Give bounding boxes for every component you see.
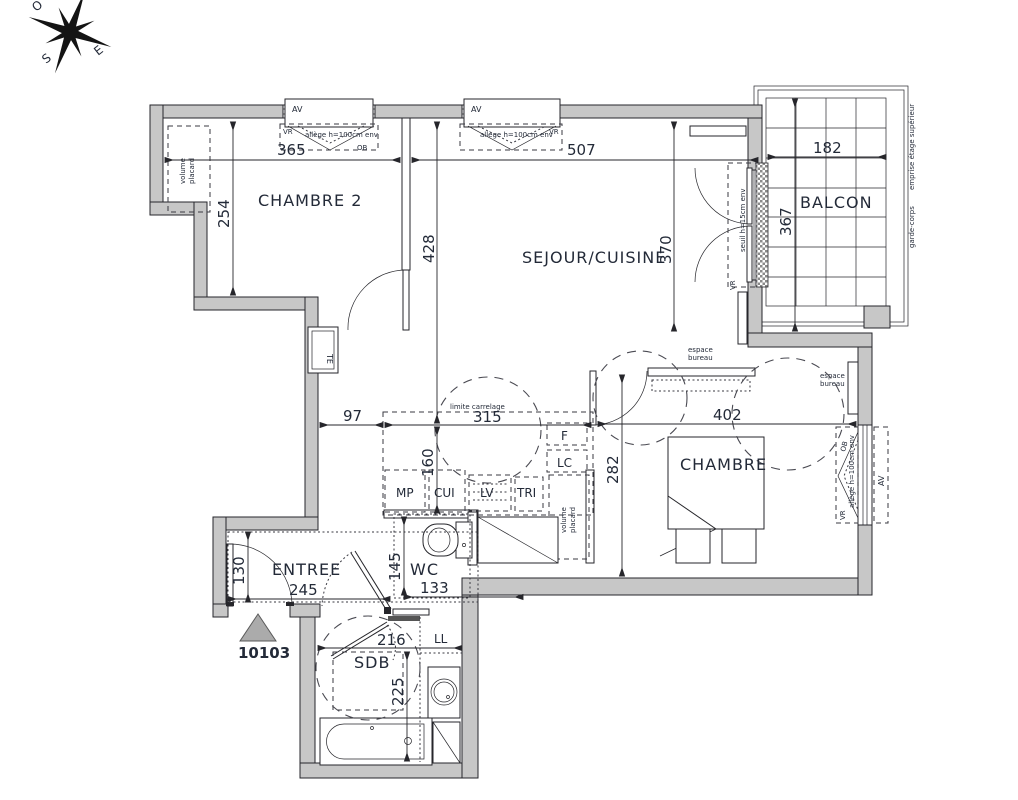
room-labels: CHAMBRE 2 SEJOUR/CUISINE CHAMBRE ENTREE … xyxy=(258,191,767,672)
label-espace-1: espace xyxy=(688,346,713,354)
label-bureau-2: bureau xyxy=(820,380,845,388)
nightstand-1 xyxy=(676,529,710,563)
label-placard-1: placard xyxy=(188,158,196,184)
room-label-wc: WC xyxy=(410,560,439,579)
dim-254: 254 xyxy=(215,199,233,228)
label-lv: LV xyxy=(480,486,494,500)
label-volume-1: volume xyxy=(179,158,187,184)
balcony: BALCON emprise étage supérieur garde-cor… xyxy=(754,86,916,328)
room-label-sejour: SEJOUR/CUISINE xyxy=(522,248,666,267)
label-espace-2: espace xyxy=(820,372,845,380)
window-sejour: AV allège h=100cm env VR xyxy=(460,99,562,150)
compass-rose: O E S xyxy=(14,0,127,88)
dim-315: 315 xyxy=(473,408,502,426)
label-placard-2: placard xyxy=(569,507,577,533)
dim-133: 133 xyxy=(420,579,449,597)
dim-97: 97 xyxy=(343,407,362,425)
room-label-entree: ENTREE xyxy=(272,560,341,579)
room-label-balcon: BALCON xyxy=(800,193,873,212)
compass-south-label: S xyxy=(39,51,54,67)
room-label-sdb: SDB xyxy=(354,653,390,672)
label-lc: LC xyxy=(557,456,572,470)
label-mp: MP xyxy=(396,486,414,500)
label-bureau-1: bureau xyxy=(688,354,713,362)
dim-130: 130 xyxy=(230,556,248,585)
dim-428: 428 xyxy=(420,234,438,263)
label-allege-3: allège h=100cm env xyxy=(848,435,856,508)
label-te: TE xyxy=(325,353,334,364)
label-seuil: seuil h=15cm env xyxy=(739,189,747,253)
dim-402: 402 xyxy=(713,406,742,424)
label-volume-2: volume xyxy=(560,507,568,533)
entrance-triangle-icon xyxy=(240,614,276,641)
floor-plan-svg: O E S BALCON emprise étage supérieur gar… xyxy=(0,0,1018,800)
dim-160: 160 xyxy=(419,448,437,477)
room-label-chambre: CHAMBRE xyxy=(680,455,767,474)
unit-number: 10103 xyxy=(238,644,290,662)
dim-145: 145 xyxy=(386,552,404,581)
floor-plan-page: O E S BALCON emprise étage supérieur gar… xyxy=(0,0,1018,800)
balcony-threshold xyxy=(756,163,768,287)
label-vr-3: VR xyxy=(839,510,847,520)
note-emprise-etage: emprise étage supérieur xyxy=(908,104,916,190)
label-tri: TRI xyxy=(516,486,536,500)
nightstand-2 xyxy=(722,529,756,563)
label-vr-4: VR xyxy=(729,280,737,290)
dim-182: 182 xyxy=(813,139,842,157)
label-av-2: AV xyxy=(471,105,482,114)
dim-225: 225 xyxy=(389,677,407,706)
label-f: F xyxy=(561,429,568,443)
dim-216: 216 xyxy=(377,631,406,649)
label-av-1: AV xyxy=(292,105,303,114)
note-garde-corps: garde-corps xyxy=(908,206,916,248)
label-allege-2: allège h=100cm env xyxy=(480,131,553,139)
label-av-3: AV xyxy=(877,475,886,486)
bathtub xyxy=(320,718,432,765)
balcony-corner-wall xyxy=(864,306,890,328)
label-ob-1: OB xyxy=(357,144,368,152)
room-label-chambre2: CHAMBRE 2 xyxy=(258,191,362,210)
label-vr-2: VR xyxy=(549,128,559,136)
dim-245: 245 xyxy=(289,581,318,599)
window-chambre: AV OB allège h=100cm env VR xyxy=(836,425,888,525)
dim-507: 507 xyxy=(567,141,596,159)
dim-367: 367 xyxy=(777,207,795,236)
label-allege-1: allège h=100cm env xyxy=(305,131,378,139)
compass-west-label: O xyxy=(29,0,45,14)
dim-282: 282 xyxy=(604,455,622,484)
label-vr-1: VR xyxy=(283,128,293,136)
washbasin xyxy=(428,667,460,718)
balcony-french-doors: seuil h=15cm env VR xyxy=(695,163,768,290)
label-ll: LL xyxy=(434,632,448,646)
wc-toilet xyxy=(423,522,472,558)
te-niche xyxy=(308,327,338,373)
dim-365: 365 xyxy=(277,141,306,159)
entrance-marker: 10103 xyxy=(238,614,290,662)
